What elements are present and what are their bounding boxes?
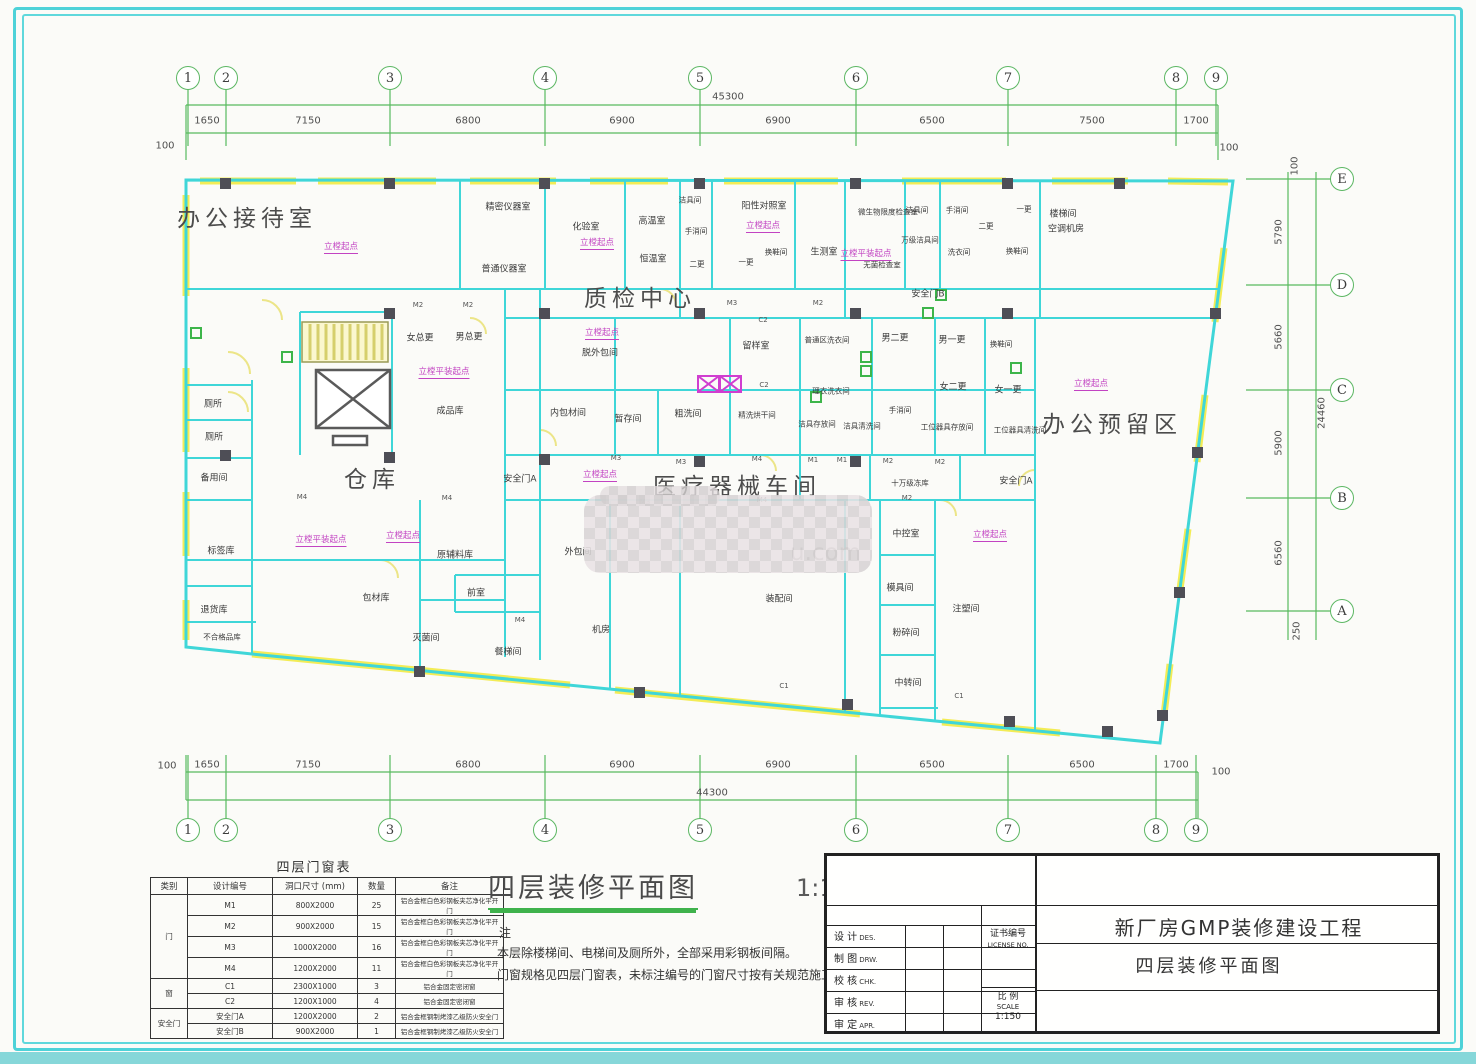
table-row: 门M1800X200025铝合金框白色彩钢板夹芯净化平开门 — [151, 895, 504, 916]
annotation-label: 立樘起点 — [324, 240, 358, 254]
schedule-cell: C2 — [188, 994, 273, 1009]
room-label: 理衣洗衣间 — [812, 386, 850, 397]
axis-bubble: 8 — [1144, 818, 1168, 842]
door-code-label: M2 — [813, 299, 824, 307]
room-label: 手消间 — [889, 405, 912, 416]
room-label: 空调机房 — [1048, 222, 1084, 235]
schedule-cell: 铝合金框白色彩钢板夹芯净化平开门 — [396, 937, 504, 958]
dimension-label: 1700 — [1183, 116, 1208, 127]
schedule-cell: 900X2000 — [273, 916, 358, 937]
axis-bubble: 4 — [533, 818, 557, 842]
room-label: 办公接待室 — [177, 199, 317, 233]
door-code-label: M2 — [413, 301, 424, 309]
annotation-label: 立樘平装起点 — [418, 365, 469, 379]
axis-bubble: E — [1330, 167, 1354, 191]
door-code-label: C2 — [758, 316, 767, 324]
axis-bubble: B — [1330, 486, 1354, 510]
dimension-label: 7150 — [295, 116, 320, 127]
room-label: 暂存间 — [614, 412, 641, 425]
tb-role: 设 计DES. — [834, 928, 876, 943]
tb-license: 证书编号 LICENSE NO. — [981, 928, 1035, 950]
dimension-label: 5660 — [1274, 324, 1285, 349]
schedule-cell: M4 — [188, 958, 273, 979]
room-label: 灭菌间 — [412, 631, 439, 644]
tb-role-en: CHK. — [859, 978, 876, 986]
annotation-label: 立樘平装起点 — [295, 533, 346, 547]
door-code-label: M2 — [883, 457, 894, 465]
room-label: 机房 — [592, 623, 610, 636]
annotation-label: 立樘起点 — [973, 528, 1007, 542]
axis-bubble: D — [1330, 273, 1354, 297]
table-row: M2900X200015铝合金框白色彩钢板夹芯净化平开门 — [151, 916, 504, 937]
axis-bubble: 2 — [214, 818, 238, 842]
room-label: 女二更 — [939, 380, 966, 393]
room-label: 粗洗间 — [674, 407, 701, 420]
dimension-label: 1650 — [194, 760, 219, 771]
elevator — [316, 370, 390, 445]
schedule-cell: 25 — [358, 895, 396, 916]
axis-bubble: 9 — [1204, 66, 1228, 90]
dimension-label: 6500 — [919, 116, 944, 127]
room-label: 留样室 — [742, 339, 769, 352]
room-label: 脱外包间 — [582, 346, 618, 359]
dimension-label: 5900 — [1274, 430, 1285, 455]
room-label: 办公预留区 — [1042, 405, 1182, 439]
drawing-sheet: u.com 四层门窗表 类别设计编号洞口尺寸 (mm)数量备注门M1800X20… — [0, 0, 1476, 1064]
schedule-cell: 铝合金框钢制烤漆乙级防火安全门 — [396, 1009, 504, 1024]
room-label: 粉碎间 — [892, 626, 919, 639]
room-label: 手消间 — [946, 205, 969, 216]
schedule-header: 洞口尺寸 (mm) — [273, 878, 358, 895]
tb-role: 审 核REV. — [834, 994, 875, 1009]
dimension-total: 45300 — [712, 92, 744, 103]
schedule-category: 窗 — [151, 979, 188, 1009]
tb-license-en: LICENSE NO. — [981, 941, 1035, 950]
door-code-label: C1 — [954, 692, 963, 700]
room-label: 男一更 — [938, 333, 965, 346]
annotation-label: 立樘起点 — [386, 529, 420, 543]
tb-role-en: APR. — [859, 1022, 875, 1030]
table-row: C21200X10004铝合金固定密闭窗 — [151, 994, 504, 1009]
dimension-label: 6900 — [609, 116, 634, 127]
schedule-header: 类别 — [151, 878, 188, 895]
axis-bubble: 1 — [176, 66, 200, 90]
room-label: 二更 — [979, 221, 994, 232]
door-code-label: M3 — [611, 454, 622, 462]
tb-scale: 比 例 SCALE 1:150 — [981, 992, 1035, 1023]
tb-role-zh: 审 核 — [834, 998, 857, 1009]
dimension-label: 6800 — [455, 760, 480, 771]
room-label: 厕所 — [205, 430, 223, 443]
room-label: 洗衣间 — [948, 247, 971, 258]
tb-role: 审 定APR. — [834, 1016, 875, 1031]
table-row: M31000X200016铝合金框白色彩钢板夹芯净化平开门 — [151, 937, 504, 958]
door-code-label: M1 — [837, 456, 848, 464]
schedule-cell: 1200X2000 — [273, 958, 358, 979]
schedule-title: 四层门窗表 — [276, 857, 351, 876]
room-label: 无菌检查室 — [863, 260, 901, 271]
dimension-label: 7150 — [295, 760, 320, 771]
tb-line — [827, 905, 1440, 906]
axis-bubble: 6 — [844, 66, 868, 90]
schedule-cell: 16 — [358, 937, 396, 958]
schedule-category: 安全门 — [151, 1009, 188, 1039]
schedule-cell: 2300X1000 — [273, 979, 358, 994]
axis-bubble: 3 — [378, 818, 402, 842]
dimension-label: 6500 — [919, 760, 944, 771]
room-label: 中转间 — [894, 676, 921, 689]
axis-bubble: C — [1330, 378, 1354, 402]
room-label: 恒温室 — [639, 252, 666, 265]
door-code-label: C2 — [759, 381, 768, 389]
schedule-cell: M1 — [188, 895, 273, 916]
schedule-cell: M3 — [188, 937, 273, 958]
axis-bubble: 7 — [996, 818, 1020, 842]
note-line: 门窗规格见四层门窗表，未标注编号的门窗尺寸按有关规范施工。 — [497, 966, 845, 983]
room-label: 注塑间 — [952, 602, 979, 615]
schedule-cell: 铝合金框钢制烤漆乙级防火安全门 — [396, 1024, 504, 1039]
door-code-label: M4 — [515, 616, 526, 624]
schedule-cell: 1200X1000 — [273, 994, 358, 1009]
door-code-label: M2 — [935, 458, 946, 466]
axis-bubble: 8 — [1164, 66, 1188, 90]
tb-role-zh: 校 核 — [834, 976, 857, 987]
room-label: 标签库 — [207, 544, 234, 557]
tb-drawing-name: 四层装修平面图 — [1039, 952, 1379, 978]
room-label: 中控室 — [892, 527, 919, 540]
room-label: 高温室 — [638, 214, 665, 227]
tb-scale-zh: 比 例 — [981, 992, 1035, 1003]
room-label: 换鞋间 — [1006, 246, 1029, 257]
room-label: 备用间 — [200, 471, 227, 484]
schedule-cell: 安全门B — [188, 1024, 273, 1039]
schedule-cell: 15 — [358, 916, 396, 937]
door-code-label: M2 — [463, 301, 474, 309]
schedule-cell: 1 — [358, 1024, 396, 1039]
room-label: 换鞋间 — [990, 339, 1013, 350]
schedule-category: 门 — [151, 895, 188, 979]
axis-bubble: A — [1330, 599, 1354, 623]
tb-line — [905, 925, 906, 1031]
schedule-cell: 11 — [358, 958, 396, 979]
tb-line — [943, 925, 944, 1031]
tb-role-zh: 制 图 — [834, 954, 857, 965]
axis-bubble: 9 — [1184, 818, 1208, 842]
room-label: 楼梯间 — [1049, 207, 1076, 220]
room-label: 化验室 — [572, 220, 599, 233]
room-label: 一更 — [1017, 204, 1032, 215]
tb-line — [981, 987, 1035, 988]
schedule-cell: 铝合金固定密闭窗 — [396, 979, 504, 994]
dimension-label: 6900 — [765, 116, 790, 127]
door-code-label: M3 — [676, 458, 687, 466]
room-label: 安全门A — [999, 474, 1032, 487]
dimension-label: 5790 — [1274, 219, 1285, 244]
room-label: 内包材间 — [550, 406, 586, 419]
room-label: 女总更 — [406, 331, 433, 344]
schedule-cell: 3 — [358, 979, 396, 994]
schedule-header: 设计编号 — [188, 878, 273, 895]
table-row: 安全门安全门A1200X20002铝合金框钢制烤漆乙级防火安全门 — [151, 1009, 504, 1024]
room-label: 洁具存放间 — [798, 419, 836, 430]
note-marker: 注 — [499, 924, 511, 941]
tb-role-en: DES. — [859, 934, 875, 942]
dimension-label: 6900 — [765, 760, 790, 771]
title-block: 证书编号 LICENSE NO. 比 例 SCALE 1:150 新厂房GMP装… — [824, 853, 1440, 1034]
door-code-label: M4 — [752, 455, 763, 463]
tb-role-en: REV. — [859, 1000, 874, 1008]
schedule-cell: 900X2000 — [273, 1024, 358, 1039]
dimension-label: 7500 — [1079, 116, 1104, 127]
room-label: 不合格品库 — [203, 632, 241, 643]
room-label: 生测室 — [810, 245, 837, 258]
room-label: 普通区洗衣间 — [805, 335, 850, 346]
room-label: 精洗烘干间 — [738, 410, 776, 421]
dimension-label: 1650 — [194, 116, 219, 127]
dimension-label: 100 — [1211, 767, 1230, 778]
annotation-label: 立樘起点 — [1074, 377, 1108, 391]
room-label: 洁具间 — [906, 205, 929, 216]
dimension-label: 6900 — [609, 760, 634, 771]
room-label: 装配间 — [765, 592, 792, 605]
dimension-label: 100 — [1290, 156, 1301, 175]
tb-line — [1037, 943, 1440, 944]
axis-bubble: 5 — [688, 818, 712, 842]
tb-scale-en: SCALE — [981, 1003, 1035, 1012]
schedule-cell: 1000X2000 — [273, 937, 358, 958]
room-label: 手消间 — [685, 226, 708, 237]
room-label: 包材库 — [362, 591, 389, 604]
table-row: 安全门B900X20001铝合金框钢制烤漆乙级防火安全门 — [151, 1024, 504, 1039]
annotation-label: 立樘起点 — [580, 236, 614, 250]
door-code-label: M4 — [442, 494, 453, 502]
dimension-total: 44300 — [696, 788, 728, 799]
axis-bubble: 7 — [996, 66, 1020, 90]
columns — [220, 178, 1221, 737]
dimension-label: 100 — [1219, 143, 1238, 154]
axis-bubble: 6 — [844, 818, 868, 842]
schedule-cell: 安全门A — [188, 1009, 273, 1024]
stairs — [302, 322, 388, 362]
dimension-label: 100 — [157, 761, 176, 772]
room-label: 十万级冻库 — [891, 478, 929, 489]
door-window-schedule: 类别设计编号洞口尺寸 (mm)数量备注门M1800X200025铝合金框白色彩钢… — [150, 877, 504, 1039]
room-label: 阳性对照室 — [741, 199, 786, 212]
annotation-label: 立樘起点 — [583, 468, 617, 482]
room-label: 男二更 — [881, 331, 908, 344]
table-row: M41200X200011铝合金框白色彩钢板夹芯净化平开门 — [151, 958, 504, 979]
room-label: 质检中心 — [584, 279, 696, 313]
room-label: 仓库 — [344, 460, 400, 494]
room-label: 安全门A — [503, 472, 536, 485]
note-line: 本层除楼梯间、电梯间及厕所外，全部采用彩钢板间隔。 — [497, 944, 797, 961]
axis-bubble: 5 — [688, 66, 712, 90]
schedule-cell: 2 — [358, 1009, 396, 1024]
tb-role: 制 图DRW. — [834, 950, 878, 965]
tb-role-zh: 审 定 — [834, 1020, 857, 1031]
dimension-label: 250 — [1292, 621, 1303, 640]
axis-bubble: 1 — [176, 818, 200, 842]
room-label: 餐梯间 — [494, 645, 521, 658]
room-label: 工位器具存放间 — [921, 422, 974, 433]
door-code-label: M4 — [297, 493, 308, 501]
dimension-label: 6500 — [1069, 760, 1094, 771]
door-code-label: M2 — [902, 494, 913, 502]
axis-bubble: 2 — [214, 66, 238, 90]
plan-title: 四层装修平面图 — [488, 866, 698, 910]
tb-role-en: DRW. — [859, 956, 877, 964]
wall-highlights — [186, 181, 1228, 733]
schedule-cell: C1 — [188, 979, 273, 994]
dimension-label: 6560 — [1274, 540, 1285, 565]
room-label: 成品库 — [436, 404, 463, 417]
tb-scale-value: 1:150 — [981, 1012, 1035, 1023]
tb-line — [827, 969, 1035, 970]
tb-role-zh: 设 计 — [834, 932, 857, 943]
room-label: 退货库 — [200, 603, 227, 616]
room-label: 精密仪器室 — [485, 200, 530, 213]
watermark-blob — [600, 486, 720, 506]
room-label: 一更 — [739, 257, 754, 268]
door-code-label: M3 — [727, 299, 738, 307]
schedule-cell: 1200X2000 — [273, 1009, 358, 1024]
dimension-label: 6800 — [455, 116, 480, 127]
room-label: 前室 — [467, 586, 485, 599]
room-label: 万级洁具间 — [901, 235, 939, 246]
room-label: 洁具间 — [679, 195, 702, 206]
schedule-cell: 铝合金框白色彩钢板夹芯净化平开门 — [396, 916, 504, 937]
room-label: 厕所 — [204, 397, 222, 410]
annotation-label: 立樘起点 — [746, 219, 780, 233]
room-label: 普通仪器室 — [481, 262, 526, 275]
schedule-cell: 铝合金固定密闭窗 — [396, 994, 504, 1009]
axis-bubble: 3 — [378, 66, 402, 90]
annotation-label: 立樘起点 — [585, 326, 619, 340]
dimension-total: 24460 — [1317, 397, 1328, 429]
axis-bubble: 4 — [533, 66, 557, 90]
annotation-label: 立樘平装起点 — [840, 247, 891, 261]
watermark — [584, 495, 872, 573]
door-code-label: C1 — [779, 682, 788, 690]
schedule-cell: 铝合金框白色彩钢板夹芯净化平开门 — [396, 958, 504, 979]
room-label: 工位器具清洗间 — [994, 425, 1047, 436]
room-label: 女一更 — [994, 383, 1021, 396]
room-label: 二更 — [690, 259, 705, 270]
room-label: 原辅料库 — [437, 548, 473, 561]
schedule-cell: M2 — [188, 916, 273, 937]
schedule-cell: 4 — [358, 994, 396, 1009]
schedule-cell: 800X2000 — [273, 895, 358, 916]
room-label: 洁具清洗间 — [843, 421, 881, 432]
tb-line — [827, 925, 1035, 926]
room-label: 男总更 — [455, 330, 482, 343]
tb-project-name: 新厂房GMP装修建设工程 — [1039, 912, 1439, 941]
tb-license-zh: 证书编号 — [981, 928, 1035, 941]
door-code-label: M1 — [808, 456, 819, 464]
tb-role: 校 核CHK. — [834, 972, 876, 987]
table-row: 窗C12300X10003铝合金固定密闭窗 — [151, 979, 504, 994]
dimension-label: 1700 — [1163, 760, 1188, 771]
room-label: 模具间 — [886, 581, 913, 594]
schedule-header: 数量 — [358, 878, 396, 895]
tb-line — [1037, 990, 1440, 991]
room-label: 换鞋间 — [765, 247, 788, 258]
dimension-label: 100 — [155, 141, 174, 152]
room-label: 安全门B — [911, 287, 944, 300]
